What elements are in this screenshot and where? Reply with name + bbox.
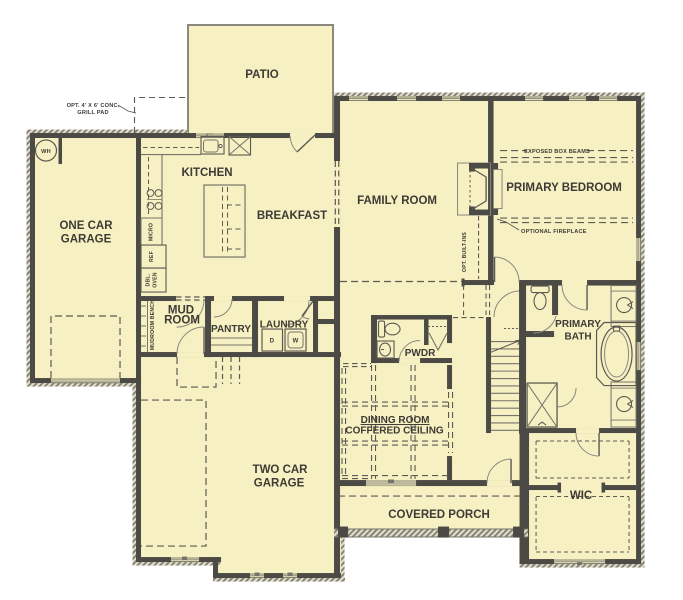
svg-text:PATIO: PATIO: [245, 69, 278, 81]
svg-text:MUDROOM BENCH: MUDROOM BENCH: [150, 300, 156, 350]
svg-text:PANTRY: PANTRY: [211, 324, 251, 335]
svg-text:KITCHEN: KITCHEN: [181, 167, 232, 179]
svg-text:OVEN: OVEN: [153, 272, 159, 288]
svg-text:D: D: [270, 339, 275, 345]
svg-text:BREAKFAST: BREAKFAST: [257, 210, 327, 222]
svg-text:ONE CAR: ONE CAR: [59, 220, 113, 232]
svg-text:LAUNDRY: LAUNDRY: [260, 320, 309, 331]
svg-text:FAMILY ROOM: FAMILY ROOM: [357, 195, 437, 207]
svg-text:OPT. 4' X 6' CONC.: OPT. 4' X 6' CONC.: [67, 103, 120, 109]
svg-text:GRILL PAD: GRILL PAD: [77, 110, 108, 116]
svg-text:PRIMARY BEDROOM: PRIMARY BEDROOM: [506, 182, 622, 194]
svg-text:REF: REF: [149, 251, 155, 262]
svg-text:W: W: [293, 339, 299, 345]
svg-text:PWDR: PWDR: [405, 348, 436, 359]
svg-text:DBL.: DBL.: [146, 273, 152, 286]
svg-text:ROOM: ROOM: [164, 315, 200, 327]
svg-text:EXPOSED BOX BEAMS: EXPOSED BOX BEAMS: [524, 149, 590, 155]
svg-text:WH: WH: [41, 149, 51, 155]
svg-text:PRIMARY: PRIMARY: [555, 319, 601, 330]
svg-text:MICRO: MICRO: [149, 223, 155, 241]
svg-text:OPT. BUILT-INS: OPT. BUILT-INS: [462, 232, 468, 272]
svg-text:BATH: BATH: [565, 332, 592, 343]
svg-text:OPTIONAL FIREPLACE: OPTIONAL FIREPLACE: [521, 229, 587, 235]
svg-text:TWO CAR: TWO CAR: [253, 464, 309, 476]
svg-text:DINING ROOM: DINING ROOM: [361, 415, 430, 426]
svg-text:COFFERED CEILING: COFFERED CEILING: [345, 426, 444, 437]
svg-text:GARAGE: GARAGE: [61, 234, 112, 246]
svg-text:COVERED PORCH: COVERED PORCH: [388, 509, 490, 521]
svg-text:WIC: WIC: [570, 490, 592, 502]
svg-text:GARAGE: GARAGE: [254, 478, 305, 490]
